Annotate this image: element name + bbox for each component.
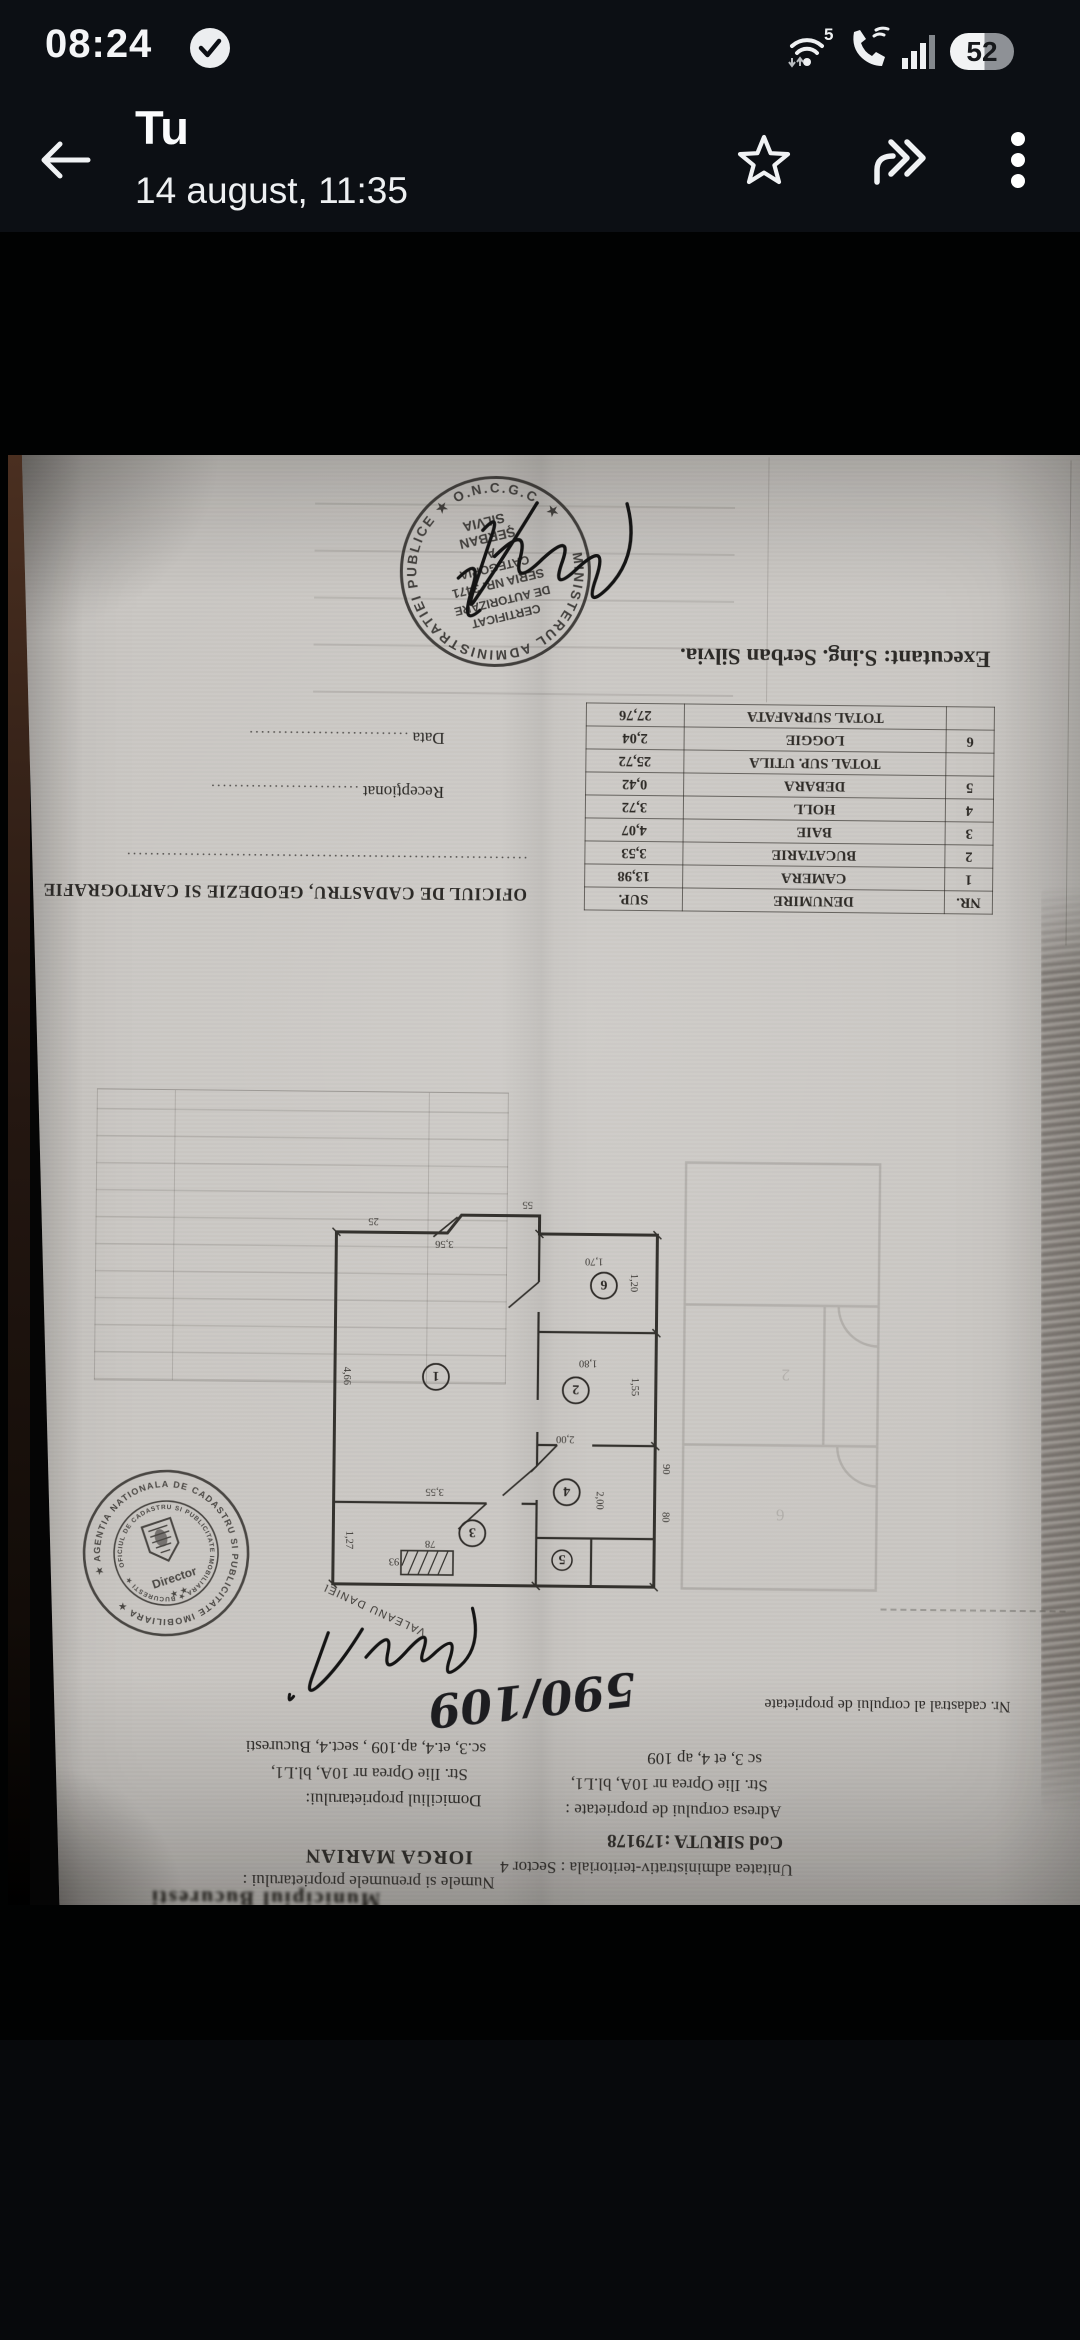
notification-check-icon — [188, 26, 232, 70]
table-row: TOTAL SUP. UTILA25,72 — [586, 749, 994, 776]
svg-text:OFICIUL DE CADASTRU SI PUBLICI: OFICIUL DE CADASTRU SI PUBLICITATE IMOBI… — [104, 1491, 228, 1615]
photo-edge-shadow — [8, 455, 30, 1905]
bottom-chrome: Răspunde — [0, 2040, 1080, 2340]
office-dotted-rule: ........................................… — [75, 847, 527, 869]
paper-right-shadow-band — [1041, 885, 1080, 1815]
conversation-title[interactable]: Tu — [135, 100, 189, 155]
wifi-icon: 5 — [784, 26, 834, 70]
photo-corner-shadow — [8, 455, 428, 815]
forward-icon — [867, 132, 929, 188]
star-message-button[interactable] — [734, 130, 794, 190]
kebab-menu-icon — [1010, 131, 1026, 189]
svg-text:3,55: 3,55 — [425, 1486, 443, 1497]
message-timestamp: 14 august, 11:35 — [135, 170, 408, 212]
svg-text:25: 25 — [368, 1215, 379, 1226]
ghost-border-line — [1065, 460, 1071, 945]
svg-text:1,27: 1,27 — [343, 1531, 354, 1549]
table-row: 2BUCATARIE3,53 — [585, 841, 993, 868]
message-photo[interactable]: Municipiul Bucuresti Unitatea administra… — [8, 455, 1080, 1905]
table-row: 3BAIE4,07 — [585, 818, 993, 845]
col-header-name: DENUMIRE — [682, 888, 944, 914]
top-chrome: 08:24 5 — [0, 0, 1080, 232]
room-number-1: 1 — [432, 1368, 439, 1383]
hatched-detail — [401, 1551, 453, 1576]
floor-plan: 1 2 3 4 5 6 3,5 — [296, 1177, 690, 1601]
paper-crease — [501, 455, 591, 1905]
table-row: TOTAL SUPRAFATA27,76 — [586, 703, 994, 730]
table-row: 1CAMERA13,98 — [585, 864, 993, 891]
svg-text:78: 78 — [425, 1538, 436, 1549]
cadastral-number-label: Nr. cadastral al corpului de proprietate — [764, 1692, 1010, 1718]
svg-text:1,20: 1,20 — [628, 1274, 639, 1292]
ghost-neighbor-plan: 6 2 — [672, 1149, 889, 1596]
executant-line: Executant: S.ing. Serban Silvia. — [680, 642, 991, 671]
office-line: OFICIUL DE CADASTRU, GEODEZIE SI CARTOGR… — [43, 879, 527, 905]
siruta-code-line: Cod SIRUTA :179178 — [607, 1826, 783, 1855]
svg-text:80: 80 — [659, 1512, 670, 1523]
clock: 08:24 — [45, 22, 152, 67]
ghost-dashed-line — [881, 1609, 1066, 1613]
svg-text:6: 6 — [776, 1505, 785, 1524]
scanned-cadastral-document: Municipiul Bucuresti Unitatea administra… — [8, 455, 1080, 1905]
property-address-label: Adresa corpului de proprietate : — [565, 1797, 781, 1824]
table-row: 5DEBARA0,42 — [586, 772, 994, 799]
svg-text:5: 5 — [824, 26, 833, 44]
star-icon — [736, 132, 792, 188]
photo-backdrop: Municipiul Bucuresti Unitatea administra… — [0, 232, 1080, 2040]
svg-text:2: 2 — [781, 1365, 790, 1384]
coat-of-arms — [142, 1518, 183, 1565]
property-address-line2: sc 3, et 4, ap 109 — [647, 1745, 762, 1771]
property-address-line1: Str. Ilie Oprea nr 10A, bl.L1, — [571, 1771, 768, 1798]
battery-indicator: 52 — [950, 33, 1014, 70]
back-arrow-icon — [36, 138, 92, 182]
table-row: 4HOLL3,72 — [585, 795, 993, 822]
svg-text:1,55: 1,55 — [629, 1378, 640, 1396]
svg-text:90: 90 — [660, 1464, 671, 1475]
forward-message-button[interactable] — [866, 130, 930, 190]
svg-text:93: 93 — [389, 1555, 400, 1566]
signal-strength-icon — [902, 30, 938, 70]
battery-percent: 52 — [966, 38, 997, 66]
message-photo-viewer-screen: 08:24 5 — [0, 0, 1080, 2340]
status-icons: 5 52 — [784, 26, 1014, 70]
room-number-6: 6 — [600, 1277, 607, 1292]
svg-text:2,00: 2,00 — [594, 1491, 605, 1509]
dimension-ticks — [329, 1228, 662, 1591]
svg-text:3,56: 3,56 — [435, 1238, 453, 1249]
back-button[interactable] — [34, 134, 94, 186]
wifi-calling-icon — [846, 26, 890, 70]
more-options-button[interactable] — [992, 130, 1044, 190]
table-row: 6LOGGIE2,04 — [586, 726, 994, 753]
col-header-nr: NR. — [944, 891, 992, 915]
table-header-row: NR. DENUMIRE SUP. — [584, 887, 992, 914]
col-header-area: SUP. — [584, 887, 682, 911]
room-number-3: 3 — [469, 1524, 476, 1539]
photo-corner-shadow-bottom — [8, 1605, 368, 1905]
room-areas-table: NR. DENUMIRE SUP. 1CAMERA13,98 2BUCATARI… — [584, 702, 995, 914]
svg-text:4,66: 4,66 — [341, 1367, 352, 1385]
